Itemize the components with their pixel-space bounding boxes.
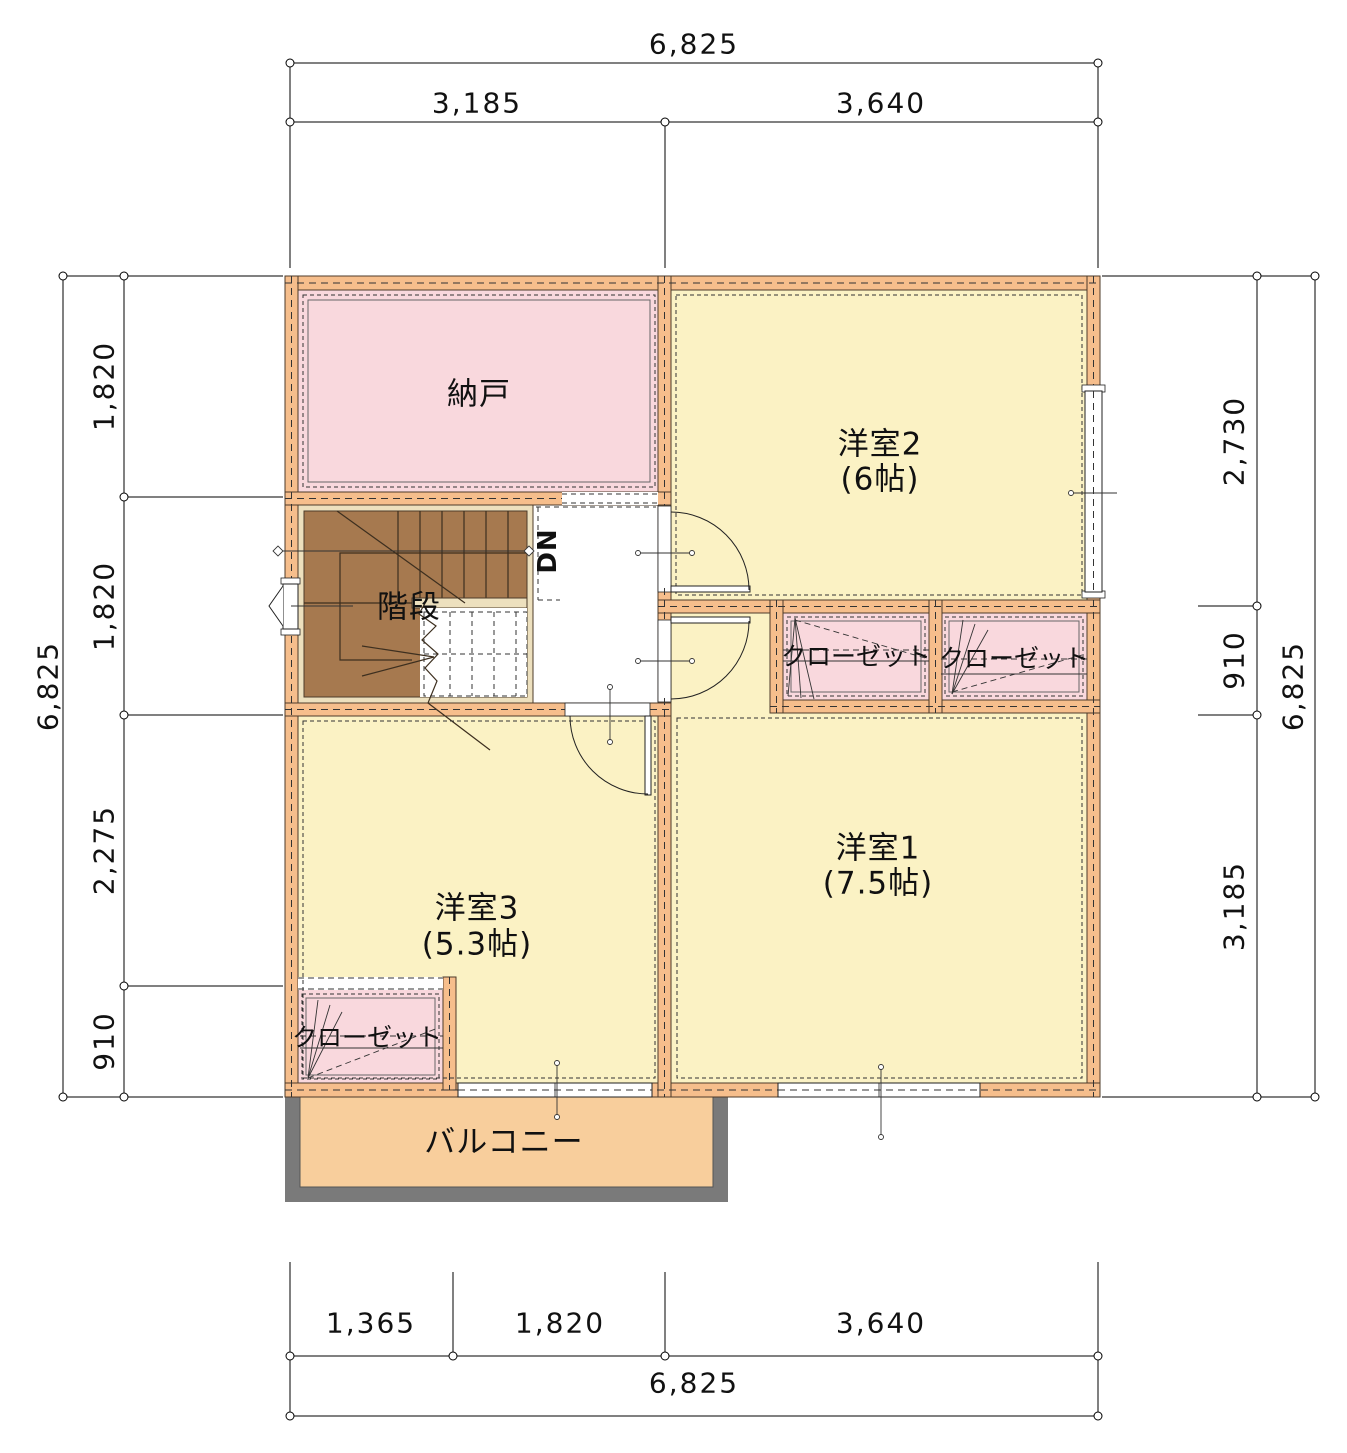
window-stairs-west-swing (269, 586, 283, 626)
dim-right-seg-2: 910 (1218, 630, 1251, 689)
balcony-frame-right (713, 1097, 728, 1202)
dim-top-seg-1: 3,185 (432, 87, 522, 120)
dim-top-overall: 6,825 (649, 28, 739, 61)
balcony-label: バルコニー (424, 1117, 583, 1162)
balcony-frame-left (285, 1097, 300, 1202)
dim-left-seg-1: 1,820 (88, 341, 121, 431)
yoshitsu2-door-gap (658, 506, 671, 592)
dim-bottom-overall: 6,825 (649, 1367, 739, 1400)
closet-c-label: クローゼット (292, 1018, 442, 1054)
dim-left-overall: 6,825 (32, 641, 65, 731)
door-leaf-yoshitsu1 (671, 617, 750, 623)
door-leaf-yoshitsu2 (671, 586, 750, 592)
room-label-nando: 納戸 (447, 369, 511, 414)
room-size-yoshitsu2: (6帖) (841, 454, 920, 499)
room-size-yoshitsu1: (7.5帖) (823, 858, 934, 903)
dim-right-seg-1: 2,730 (1218, 396, 1251, 486)
stairs-down-label: DN (533, 528, 563, 573)
dim-right-overall: 6,825 (1277, 641, 1310, 731)
closet-a-label: クローゼット (781, 637, 931, 673)
dim-left-seg-3: 2,275 (88, 805, 121, 895)
dim-top-seg-2: 3,640 (836, 87, 926, 120)
window-cap (281, 629, 300, 635)
yoshitsu3-door-gap (565, 703, 650, 716)
room-size-yoshitsu3: (5.3帖) (422, 919, 533, 964)
floorplan-drawing (0, 0, 1347, 1453)
balcony-frame-bottom (285, 1187, 728, 1202)
dim-left-seg-4: 910 (88, 1011, 121, 1070)
window-cap (281, 578, 300, 584)
floorplan-page: 納戸 洋室2 (6帖) 階段 DN クローゼット クローゼット 洋室1 (7.5… (0, 0, 1347, 1453)
dim-bottom-seg-2: 1,820 (515, 1307, 605, 1340)
dim-left-seg-2: 1,820 (88, 561, 121, 651)
door-leaf-yoshitsu3 (645, 716, 651, 795)
closet-c-north-edge (298, 977, 443, 990)
window-stairs-west (283, 584, 298, 629)
closet-b-label: クローゼット (939, 639, 1089, 675)
dim-bottom-seg-1: 1,365 (326, 1307, 416, 1340)
room-label-stairs: 階段 (377, 582, 441, 627)
dim-right-seg-3: 3,185 (1218, 861, 1251, 951)
dim-bottom-seg-3: 3,640 (836, 1307, 926, 1340)
